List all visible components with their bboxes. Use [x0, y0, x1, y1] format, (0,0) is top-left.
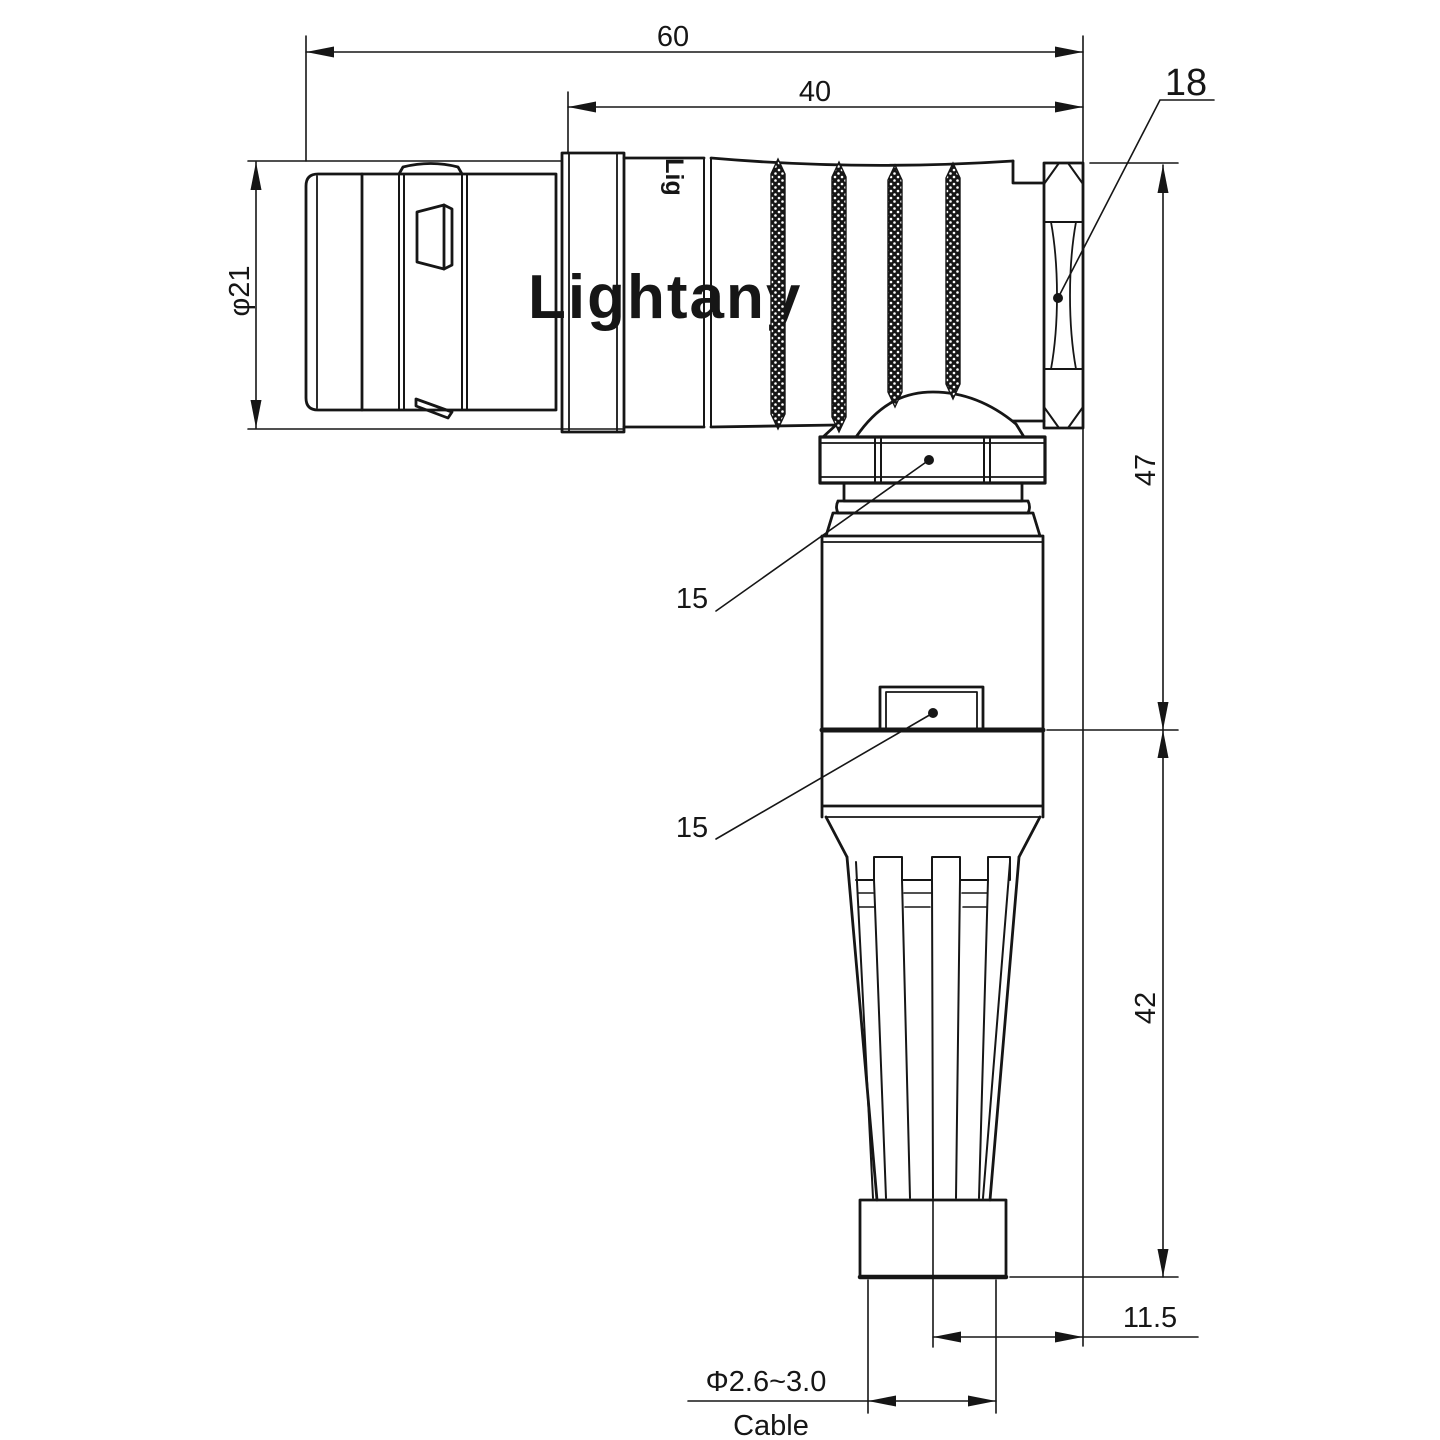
latch-window — [417, 205, 444, 269]
cable-word-label: Cable — [733, 1410, 809, 1440]
callout-15-lower-label: 15 — [676, 812, 708, 844]
connector-dimension-drawing: Lightany — [0, 0, 1440, 1440]
dim-phi21-label: φ21 — [224, 265, 256, 316]
lower-body — [822, 730, 1043, 817]
arrowheads — [251, 47, 1169, 1407]
body-latch-window — [880, 687, 983, 729]
dim-47-label: 47 — [1130, 454, 1162, 486]
dimension-lines — [248, 36, 1214, 1413]
neck-collar — [844, 483, 1022, 501]
technical-drawing-page: Lightany — [0, 0, 1440, 1440]
brand-engraving-text: Lig — [660, 158, 688, 196]
elbow-shoulder — [856, 392, 1024, 437]
leader-dot-15-upper — [924, 455, 934, 465]
latch-notch — [416, 399, 452, 418]
leader-dot-15-lower — [928, 708, 938, 718]
callout-15-upper-label: 15 — [676, 583, 708, 615]
elbow-body — [822, 536, 1043, 729]
dim-60-label: 60 — [657, 21, 689, 53]
elbow-column — [820, 437, 1045, 1277]
dim-42-label: 42 — [1130, 992, 1162, 1024]
rear-hex-nut — [1044, 163, 1083, 428]
dim-11-5-label: 11.5 — [1123, 1302, 1177, 1334]
dim-40-label: 40 — [799, 76, 831, 108]
leader-dot-18 — [1053, 293, 1063, 303]
bayonet-key-bump — [399, 164, 462, 175]
grip-top-edge — [711, 158, 1013, 165]
leader-18 — [1058, 100, 1214, 298]
dim-18-label: 18 — [1165, 62, 1207, 104]
dim-cable-diameter-label: Φ2.6~3.0 — [706, 1366, 827, 1398]
